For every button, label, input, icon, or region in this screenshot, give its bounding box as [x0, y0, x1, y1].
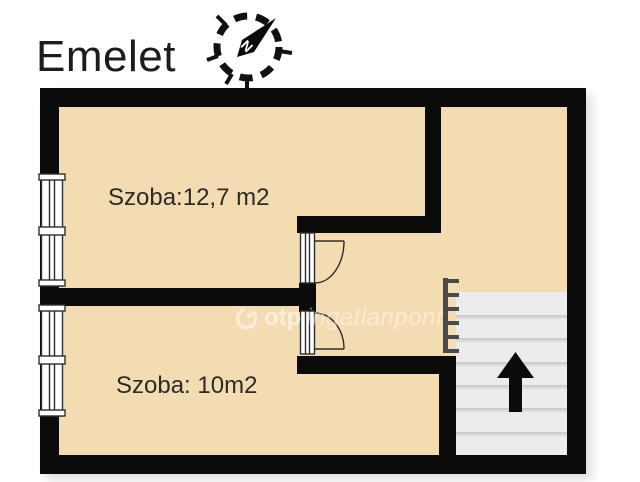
- window-symbol-lower: [39, 305, 65, 416]
- plan-symbols: [0, 0, 640, 482]
- watermark-brand: otp: [264, 304, 301, 332]
- floor-plan-image: Emelet N: [0, 0, 640, 482]
- stair-railing-icon: [443, 278, 459, 353]
- room-label-upper: Szoba:12,7 m2: [108, 185, 269, 211]
- window-symbol-upper: [39, 174, 65, 286]
- room-label-lower: Szoba: 10m2: [116, 373, 257, 399]
- door-symbol-upper: [301, 233, 345, 283]
- watermark: otpingatlanpont: [234, 304, 443, 332]
- door-arc: [315, 241, 344, 283]
- up-arrow-icon: [497, 352, 534, 412]
- watermark-logo-icon: [234, 306, 259, 331]
- watermark-suffix: ingatlanpont: [306, 304, 443, 332]
